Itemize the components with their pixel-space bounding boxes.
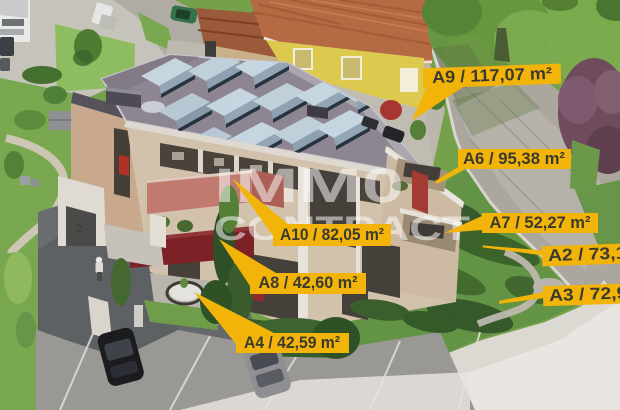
svg-text:A4 / 42,59 m²: A4 / 42,59 m²: [244, 333, 340, 352]
svg-text:A6 / 95,38 m²: A6 / 95,38 m²: [463, 149, 565, 168]
svg-text:A10 / 82,05 m²: A10 / 82,05 m²: [280, 225, 384, 244]
svg-text:IMM0: IMM0: [214, 160, 404, 213]
svg-text:A7 / 52,27 m²: A7 / 52,27 m²: [490, 213, 591, 232]
svg-text:A3 / 72,90 m²: A3 / 72,90 m²: [549, 282, 620, 305]
svg-text:A2 / 73,13 m²: A2 / 73,13 m²: [548, 242, 620, 265]
svg-text:A8 / 42,60 m²: A8 / 42,60 m²: [259, 273, 358, 292]
svg-text:2: 2: [76, 223, 82, 235]
